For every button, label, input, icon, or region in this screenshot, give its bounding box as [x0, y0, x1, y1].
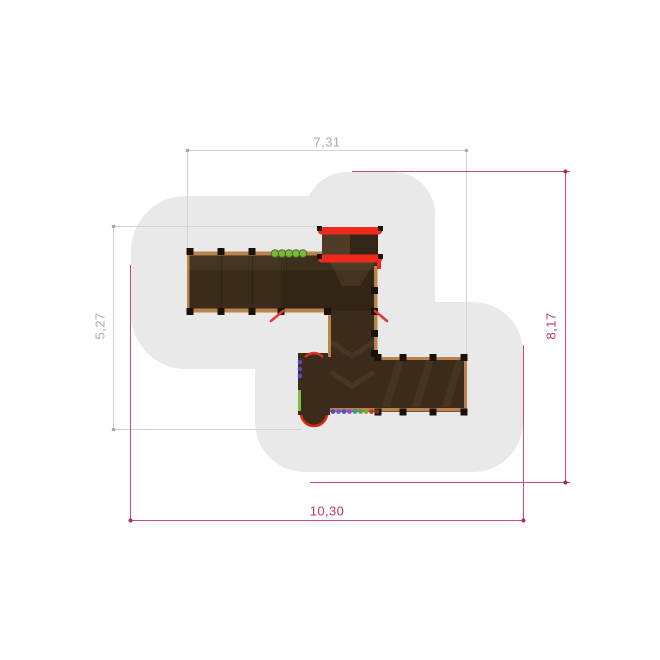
post [371, 330, 378, 337]
hold [336, 409, 341, 414]
hold [342, 409, 347, 414]
dim-bottom-dot-left [129, 519, 133, 523]
hold [375, 409, 380, 414]
post [430, 409, 437, 416]
dim-bottom-label: 10,30 [310, 504, 345, 519]
post [371, 287, 378, 294]
purple-hold [298, 367, 303, 372]
tower-red-bar-bottom [318, 255, 382, 263]
safety-zone [131, 172, 523, 472]
tower-roof-left [322, 235, 350, 256]
roller-ball [271, 250, 279, 258]
post [187, 248, 194, 255]
roller-ball [285, 250, 293, 258]
roller-ball [292, 250, 300, 258]
post [249, 248, 256, 255]
dim-top-dot-left [186, 149, 190, 153]
tower-roof-right [350, 235, 378, 256]
hold [358, 409, 363, 414]
edge-bottom [187, 309, 331, 313]
post [461, 409, 468, 416]
post [430, 354, 437, 361]
hold [353, 409, 358, 414]
dim-bottom-dot-right [522, 519, 526, 523]
roller-ball [299, 250, 307, 258]
dim-right-dot-bottom [564, 481, 568, 485]
post [218, 308, 225, 315]
climbing-holds [331, 409, 380, 414]
post [375, 354, 382, 361]
edge-arm2-right [464, 357, 467, 411]
hold [369, 409, 374, 414]
dim-top-dot-right [465, 149, 469, 153]
green-edge-strip [298, 390, 301, 411]
purple-hold [298, 360, 303, 365]
post [461, 354, 468, 361]
edge-arm2-top [377, 357, 467, 360]
bottom-left-block [298, 353, 330, 415]
tower-corner-post [378, 254, 383, 259]
post [218, 248, 225, 255]
hold [364, 409, 369, 414]
post [187, 308, 194, 315]
column-deck [328, 311, 377, 412]
edge-column-left [328, 311, 331, 357]
roller-ball [278, 250, 286, 258]
plan-canvas: 7,31 5,27 8,17 10,30 [0, 0, 660, 660]
tower-corner-post [378, 226, 383, 231]
post [400, 409, 407, 416]
green-rollers [271, 250, 307, 258]
dim-left-label: 5,27 [93, 313, 108, 340]
post [324, 308, 331, 315]
dim-left-dot-top [112, 225, 116, 229]
edge-left-cap [187, 255, 190, 312]
post [400, 354, 407, 361]
hold [347, 409, 352, 414]
tower-corner-post [317, 226, 322, 231]
dim-right-dot-top [564, 170, 568, 174]
purple-hold [298, 374, 303, 379]
tower-red-stub [377, 260, 381, 269]
hold [331, 409, 336, 414]
dim-left-dot-bottom [112, 428, 116, 432]
tower-red-bar-top [318, 227, 382, 235]
dim-right-label: 8,17 [544, 313, 559, 340]
post [249, 308, 256, 315]
dim-top-label: 7,31 [314, 135, 341, 150]
tower-corner-post [317, 254, 322, 259]
